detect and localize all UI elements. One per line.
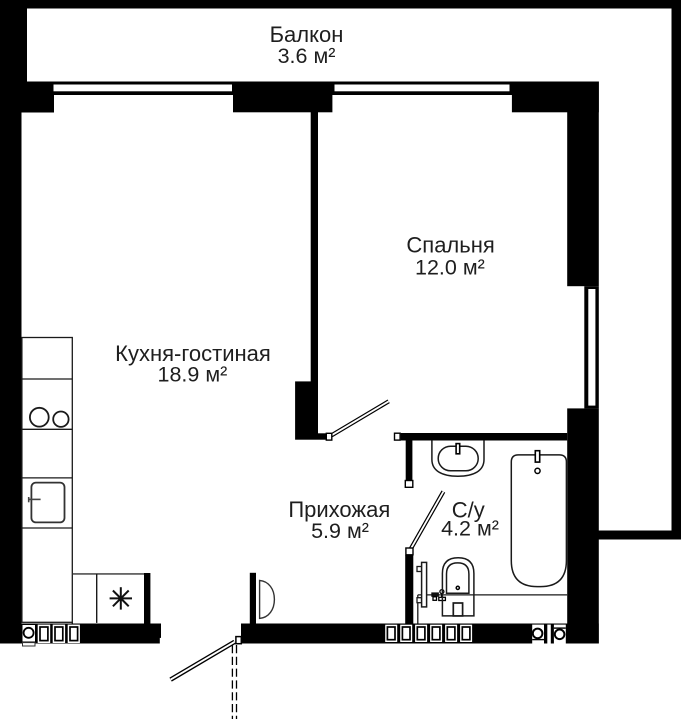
svg-text:Спальня: Спальня [406, 233, 494, 258]
svg-text:3.6 м²: 3.6 м² [278, 44, 336, 68]
svg-text:18.9 м²: 18.9 м² [158, 362, 228, 386]
svg-text:4.2 м²: 4.2 м² [441, 517, 499, 541]
svg-text:5.9 м²: 5.9 м² [311, 519, 369, 543]
svg-text:12.0 м²: 12.0 м² [415, 256, 485, 280]
